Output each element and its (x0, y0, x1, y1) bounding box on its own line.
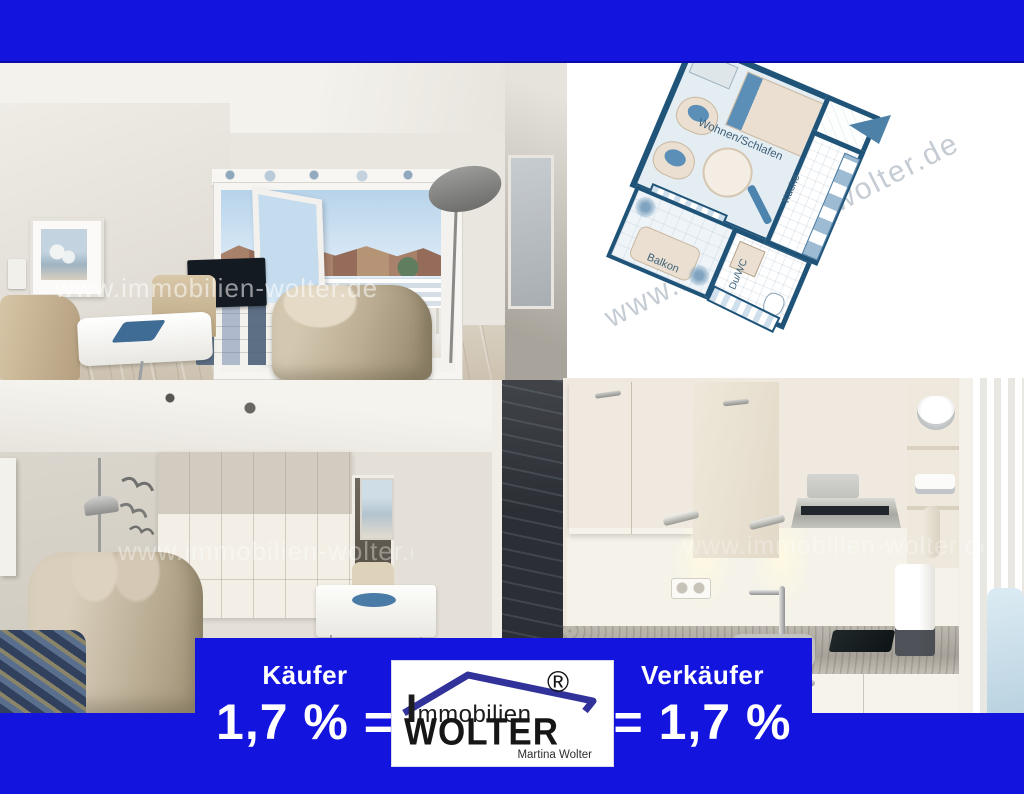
buyer-label: Käufer (262, 660, 347, 691)
faucet (779, 586, 785, 636)
wall-picture (360, 478, 394, 540)
cooktop (829, 630, 896, 652)
seagull-wall-decor (116, 472, 176, 542)
plan-tv-board (747, 184, 773, 225)
striped-blanket (0, 630, 86, 713)
plan-plant (631, 193, 660, 222)
coffee-maker (895, 564, 935, 656)
real-estate-collage: www.immobilien-wolter.de www.immobilien-… (0, 0, 1024, 794)
plan-armchair-2 (648, 135, 701, 185)
logo-brand-main: WOLTER (404, 711, 559, 754)
seller-label: Verkäufer (641, 660, 764, 691)
light-switch (8, 259, 26, 289)
window-sill (0, 458, 16, 576)
floor-plan-panel: www.immobilien-wolter.de Wohnen/Schlafen (567, 63, 1024, 380)
registered-trademark-icon: ® (547, 666, 569, 700)
plan-cushion (662, 146, 689, 169)
stacked-dishes (915, 474, 955, 494)
seller-rate: = 1,7 % (614, 693, 792, 751)
upper-cabinet-left (569, 382, 693, 534)
watermark: www.immobilien-wolter.de (118, 536, 413, 567)
photo-living-room-balcony: www.immobilien-wolter.de (0, 63, 567, 380)
north-arrow-icon (849, 115, 891, 145)
hood-glass (807, 474, 859, 498)
hood-control-strip (801, 506, 889, 515)
commission-banner: Käufer 1,7 % = Verkäufer = 1,7 % ® Immob… (195, 638, 812, 794)
power-outlet (671, 578, 711, 599)
dining-chair-left (0, 295, 80, 380)
blue-towel (987, 588, 1024, 716)
wall-mirror (508, 155, 554, 309)
dining-table (77, 312, 213, 367)
plan-wardrobe (689, 63, 739, 90)
agency-logo: ® Immobilien WOLTER Martina Wolter (392, 661, 613, 766)
watermark: www.immobilien-wolter.de (683, 532, 983, 561)
logo-owner-name: Martina Wolter (392, 749, 592, 761)
white-table (316, 585, 436, 637)
buyer-rate: 1,7 % = (216, 693, 394, 751)
blue-table-cloth (111, 320, 166, 343)
watermark: www.immobilien-wolter.de (55, 273, 378, 304)
extractor-hood (791, 498, 901, 528)
teapot (917, 396, 955, 430)
top-blue-bar (0, 0, 1024, 61)
blue-table-item (352, 593, 396, 607)
seller-commission: Verkäufer = 1,7 % (610, 638, 795, 758)
plan-kitchen-counter (802, 153, 861, 261)
ceiling-with-spots (0, 380, 563, 452)
buyer-commission: Käufer 1,7 % = (215, 638, 395, 758)
